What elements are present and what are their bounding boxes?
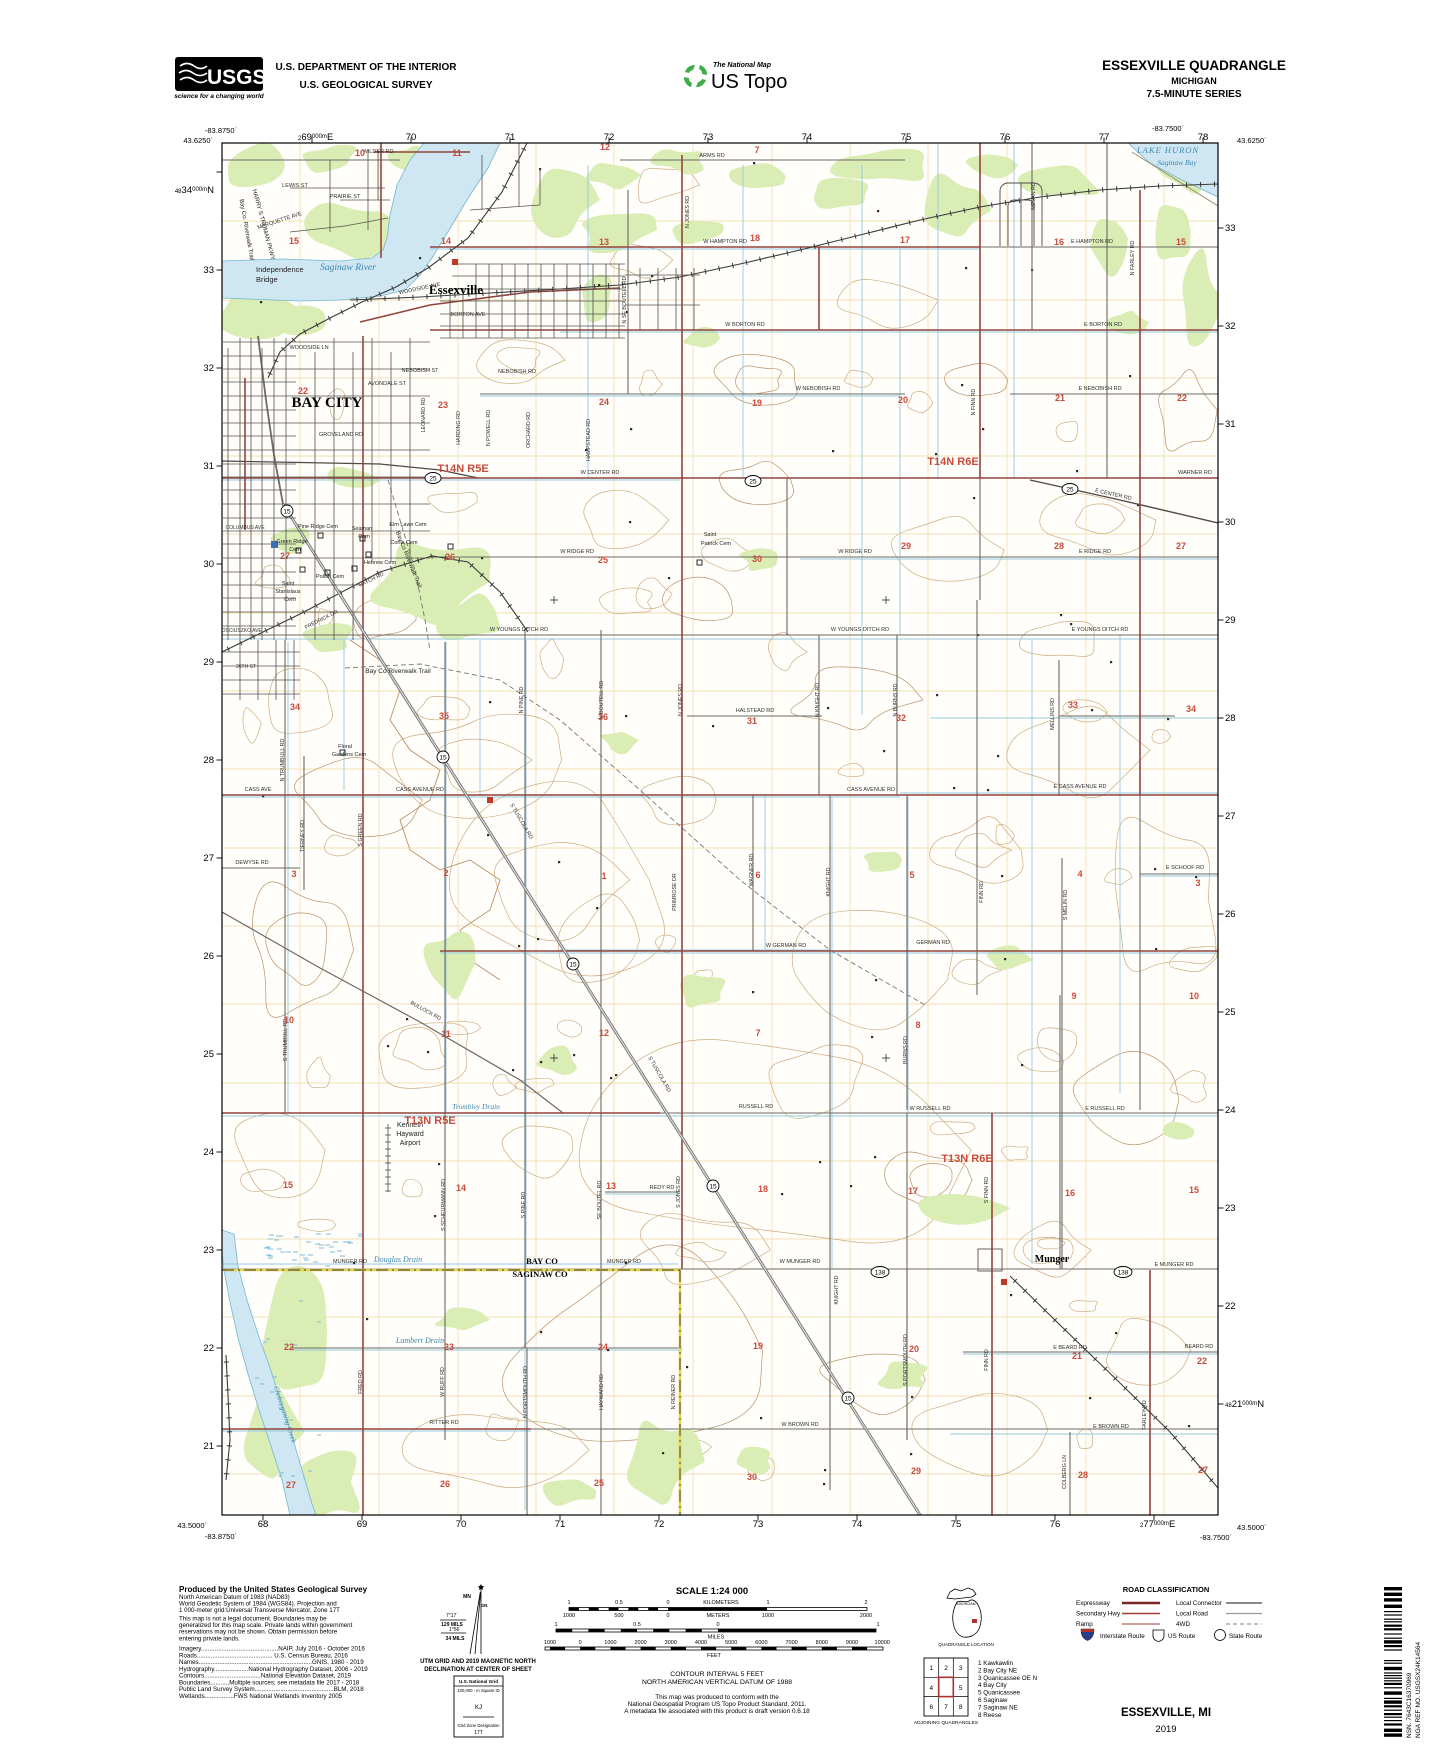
svg-text:2: 2 [944,1665,948,1672]
svg-text:7: 7 [754,145,759,155]
svg-text:Produced by the United States: Produced by the United States Geological… [179,1585,368,1594]
svg-text:N JONES RD: N JONES RD [678,684,684,716]
svg-text:26: 26 [1225,909,1236,920]
svg-text:S PINE RD: S PINE RD [521,1192,527,1219]
svg-text:1000: 1000 [563,1613,575,1619]
svg-text:N KNIGHT RD: N KNIGHT RD [815,683,821,718]
svg-text:Saint: Saint [282,581,295,587]
svg-text:BAY CO: BAY CO [526,1256,558,1266]
svg-text:E HAMPTON RD: E HAMPTON RD [1071,239,1113,245]
svg-text:Ramp: Ramp [1076,1621,1093,1628]
svg-text:Hebrew Cem: Hebrew Cem [364,560,397,566]
svg-text:USGS: USGS [207,66,267,89]
svg-text:REDY RD: REDY RD [650,1185,675,1191]
svg-text:GERMAN RD: GERMAN RD [916,940,950,946]
svg-text:WILDER RD: WILDER RD [363,149,394,155]
svg-text:W CENTER RD: W CENTER RD [581,470,620,476]
svg-text:0.5: 0.5 [633,1622,641,1628]
svg-text:70: 70 [456,1519,467,1530]
svg-text:National Geospatial Program US: National Geospatial Program US Topo Prod… [628,1701,807,1708]
svg-text:27: 27 [1198,1465,1208,1475]
svg-text:500: 500 [614,1613,623,1619]
svg-text:6: 6 [929,1704,933,1711]
svg-text:Saint: Saint [704,532,717,538]
svg-text:71: 71 [555,1519,566,1530]
svg-text:METERS: METERS [707,1613,730,1619]
svg-text:CASS AVE: CASS AVE [245,787,272,793]
svg-text:28: 28 [1054,541,1064,551]
svg-text:4000: 4000 [695,1640,707,1646]
svg-text:4WD: 4WD [1176,1621,1190,1628]
svg-text:43.6250´: 43.6250´ [1237,136,1267,145]
svg-text:COLBERG LN: COLBERG LN [1062,1455,1068,1489]
svg-text:1000: 1000 [544,1640,556,1646]
svg-text:72: 72 [654,1519,665,1530]
svg-text:18: 18 [750,233,760,243]
svg-text:MICHIGAN: MICHIGAN [1171,76,1217,86]
svg-text:0: 0 [666,1613,669,1619]
svg-text:0: 0 [716,1622,719,1628]
svg-text:100,000 - m Square ID: 100,000 - m Square ID [457,1688,499,1693]
svg-text:12: 12 [599,1028,609,1038]
svg-text:24: 24 [1225,1105,1236,1116]
svg-text:W RUSSELL RD: W RUSSELL RD [909,1106,950,1112]
svg-text:21: 21 [203,1441,214,1452]
svg-text:Floral: Floral [338,744,352,750]
svg-text:NEBOBISH RD: NEBOBISH RD [498,369,536,375]
svg-text:ORCHARD RD: ORCHARD RD [526,412,532,448]
svg-text:ADJOINING QUADRANGLES: ADJOINING QUADRANGLES [914,1720,978,1726]
svg-text:W RUFF RD: W RUFF RD [440,1367,446,1397]
svg-text:4: 4 [1077,869,1082,879]
svg-text:KNIGHT RD: KNIGHT RD [826,867,832,896]
svg-text:8 Reese: 8 Reese [978,1712,1002,1719]
svg-text:Local Connector: Local Connector [1176,1600,1222,1607]
svg-text:NEBOBISH ST: NEBOBISH ST [402,368,440,374]
svg-text:N PORTSMOUTH RD: N PORTSMOUTH RD [523,1366,529,1418]
svg-text:U.S. DEPARTMENT OF THE INTERIO: U.S. DEPARTMENT OF THE INTERIOR [276,62,458,73]
svg-text:FEET: FEET [707,1653,722,1659]
svg-text:27: 27 [1176,541,1186,551]
svg-text:20: 20 [898,395,908,405]
svg-text:HARDING RD: HARDING RD [456,411,462,445]
svg-text:15: 15 [283,1180,293,1190]
svg-text:S GREEN RD: S GREEN RD [358,813,364,846]
svg-text:This map was produced to confo: This map was produced to conform with th… [655,1694,779,1701]
svg-text:29: 29 [901,541,911,551]
svg-text:15: 15 [289,236,299,246]
svg-text:LEONARD RD: LEONARD RD [421,397,427,432]
svg-text:24: 24 [203,1147,214,1158]
svg-text:15: 15 [709,1184,717,1191]
svg-text:T13N R6E: T13N R6E [941,1153,992,1165]
svg-text:1: 1 [567,1600,570,1606]
svg-text:Munger: Munger [1035,1254,1070,1265]
svg-text:W GERMAN RD: W GERMAN RD [766,943,806,949]
svg-text:68: 68 [258,1519,269,1530]
svg-text:4 Bay City: 4 Bay City [978,1682,1008,1689]
svg-text:Saginaw Bay: Saginaw Bay [1157,158,1197,167]
svg-text:23: 23 [444,1342,454,1352]
svg-text:33: 33 [1068,700,1078,710]
svg-text:43.5000´: 43.5000´ [177,1521,207,1530]
svg-text:0.5: 0.5 [615,1600,623,1606]
svg-text:1 Kawkawlin: 1 Kawkawlin [978,1660,1013,1667]
svg-text:7: 7 [944,1704,948,1711]
svg-text:Grid Zone Designation: Grid Zone Designation [458,1723,501,1728]
svg-text:23: 23 [438,400,448,410]
svg-text:PRIMROSE DR: PRIMROSE DR [672,873,678,911]
svg-text:ARMS RD: ARMS RD [699,153,724,159]
svg-text:30: 30 [747,1472,757,1482]
svg-text:75: 75 [951,1519,962,1530]
svg-text:Wetlands.................FWS: Wetlands.................FWS National We… [179,1693,343,1700]
svg-text:15: 15 [283,509,291,516]
svg-text:74: 74 [852,1519,863,1530]
svg-text:15: 15 [569,962,577,969]
svg-text:27: 27 [286,1480,296,1490]
svg-text:U.S. National Grid: U.S. National Grid [459,1679,498,1684]
svg-text:1: 1 [929,1665,933,1672]
svg-text:9000: 9000 [846,1640,858,1646]
svg-text:17: 17 [900,235,910,245]
svg-text:E BORTON RD: E BORTON RD [1084,322,1122,328]
svg-text:MN: MN [463,1594,471,1600]
svg-text:Stanislaus: Stanislaus [275,589,301,595]
svg-text:3: 3 [959,1665,963,1672]
svg-text:27: 27 [1225,811,1236,822]
svg-text:T13N R5E: T13N R5E [404,1115,455,1127]
svg-text:CASS AVENUE RD: CASS AVENUE RD [847,787,895,793]
svg-text:US Topo: US Topo [711,71,787,93]
svg-text:34: 34 [290,702,300,712]
svg-text:28: 28 [1225,713,1236,724]
svg-text:15: 15 [439,755,447,762]
svg-text:Lambert Drain: Lambert Drain [395,1336,444,1345]
svg-text:Independence: Independence [256,265,304,274]
svg-text:14: 14 [441,236,451,246]
svg-text:CONTOUR INTERVAL 5 FEET: CONTOUR INTERVAL 5 FEET [670,1671,763,1678]
svg-text:26: 26 [440,1479,450,1489]
svg-text:Local Road: Local Road [1176,1611,1208,1618]
svg-text:30: 30 [203,559,214,570]
svg-text:MICHIGAN: MICHIGAN [957,1602,976,1606]
svg-text:State Route: State Route [1229,1633,1263,1640]
svg-text:Airport: Airport [400,1140,421,1147]
svg-text:-83.8750´: -83.8750´ [205,1532,237,1541]
svg-text:21: 21 [1055,393,1065,403]
svg-text:W MUNGER RD: W MUNGER RD [780,1259,821,1265]
svg-text:1: 1 [876,1622,879,1628]
svg-text:29: 29 [203,657,214,668]
svg-text:5: 5 [959,1685,963,1692]
svg-text:NSN. 7643C16370969: NSN. 7643C16370969 [1406,1672,1413,1738]
svg-text:15: 15 [844,1396,852,1403]
svg-text:26: 26 [445,552,455,562]
svg-text:LEWIS ST: LEWIS ST [282,183,308,189]
svg-text:W RIDGE RD: W RIDGE RD [838,549,872,555]
svg-text:Cem: Cem [284,597,296,603]
svg-text:FINN RD: FINN RD [984,1349,990,1371]
svg-text:31: 31 [1225,419,1236,430]
svg-text:SE BOUTEL RD: SE BOUTEL RD [597,1180,603,1219]
svg-text:11: 11 [441,1029,451,1039]
svg-text:WAGNER RD: WAGNER RD [749,853,755,886]
svg-text:E MUNGER RD: E MUNGER RD [1154,1262,1193,1268]
svg-text:N REINER RD: N REINER RD [671,1375,677,1410]
svg-text:4: 4 [929,1685,933,1692]
svg-text:W HAMPTON RD: W HAMPTON RD [703,239,747,245]
svg-text:7 Saginaw NE: 7 Saginaw NE [978,1704,1018,1711]
svg-text:7000: 7000 [785,1640,797,1646]
svg-text:22: 22 [1177,393,1187,403]
svg-text:US Route: US Route [1168,1633,1196,1640]
svg-text:N BURNS RD: N BURNS RD [893,683,899,716]
svg-text:W YOUNGS DITCH RD: W YOUNGS DITCH RD [831,627,889,633]
svg-text:73: 73 [753,1519,764,1530]
svg-text:MILES: MILES [708,1635,725,1641]
svg-text:32: 32 [1225,321,1236,332]
svg-text:Patrick Cem: Patrick Cem [701,541,731,547]
svg-text:22: 22 [1197,1356,1207,1366]
svg-text:U.S. GEOLOGICAL SURVEY: U.S. GEOLOGICAL SURVEY [300,80,433,91]
svg-text:Bridge: Bridge [256,275,278,284]
svg-text:TIERNEY RD: TIERNEY RD [300,820,306,852]
svg-text:PRAIRIE ST: PRAIRIE ST [330,194,361,200]
svg-text:Bay Co Riverwalk Trail: Bay Co Riverwalk Trail [365,668,431,675]
svg-text:Pine Ridge Cem: Pine Ridge Cem [298,524,338,530]
svg-text:16: 16 [1065,1188,1075,1198]
svg-text:W NEBOBISH RD: W NEBOBISH RD [796,386,841,392]
svg-text:GROVELAND RD: GROVELAND RD [319,432,363,438]
svg-text:18: 18 [758,1184,768,1194]
svg-text:22: 22 [298,386,308,396]
svg-text:7°17´: 7°17´ [446,1613,458,1619]
svg-text:RUSSELL RD: RUSSELL RD [739,1104,773,1110]
svg-text:7.5-MINUTE SERIES: 7.5-MINUTE SERIES [1146,89,1241,100]
svg-text:KNIGHT RD: KNIGHT RD [834,1275,840,1304]
svg-text:2019: 2019 [1155,1724,1176,1735]
svg-text:1: 1 [766,1600,769,1606]
svg-text:3: 3 [291,869,296,879]
svg-text:KJ: KJ [475,1705,482,1711]
svg-text:S TRUMBULL RD: S TRUMBULL RD [283,1019,289,1062]
svg-text:1°56´: 1°56´ [449,1627,461,1633]
svg-text:FARLEY RD: FARLEY RD [1142,1400,1148,1430]
svg-text:6000: 6000 [755,1640,767,1646]
svg-text:T14N R5E: T14N R5E [437,463,488,475]
svg-text:5000: 5000 [725,1640,737,1646]
svg-text:10000: 10000 [875,1640,890,1646]
svg-text:N FINN RD: N FINN RD [971,388,977,415]
svg-text:30: 30 [752,554,762,564]
svg-text:3: 3 [1195,878,1200,888]
svg-text:9: 9 [1071,991,1076,1001]
svg-text:DEWYSE RD: DEWYSE RD [235,860,268,866]
svg-text:32: 32 [203,363,214,374]
svg-text:BORTON AVE: BORTON AVE [450,312,485,318]
svg-text:19: 19 [753,1341,763,1351]
svg-text:14: 14 [456,1183,466,1193]
svg-text:3 Quanicassee OE N: 3 Quanicassee OE N [978,1675,1038,1682]
svg-text:S SCHEURMANN RD: S SCHEURMANN RD [441,1179,447,1231]
svg-text:S JONES RD: S JONES RD [676,1176,682,1208]
svg-text:32: 32 [896,713,906,723]
svg-text:35: 35 [439,711,449,721]
svg-text:25: 25 [203,1049,214,1060]
svg-text:Expressway: Expressway [1076,1600,1111,1607]
svg-text:MELAN RD: MELAN RD [1031,182,1037,210]
svg-text:BEARD RD: BEARD RD [1185,1344,1213,1350]
svg-text:13: 13 [599,237,609,247]
svg-text:BAY CITY: BAY CITY [292,395,363,411]
svg-text:8000: 8000 [816,1640,828,1646]
svg-text:28: 28 [203,755,214,766]
svg-text:69: 69 [357,1519,368,1530]
svg-text:31: 31 [203,461,214,472]
svg-text:6: 6 [755,870,760,880]
svg-text:CASS AVENUE RD: CASS AVENUE RD [396,787,444,793]
svg-text:KOSCIUSZKO AVE: KOSCIUSZKO AVE [218,628,262,634]
svg-text:UTM GRID AND 2019 MAGNETIC NOR: UTM GRID AND 2019 MAGNETIC NORTH [420,1659,536,1665]
svg-text:36: 36 [598,712,608,722]
svg-text:S PORTSMOUTH RD: S PORTSMOUTH RD [903,1334,909,1386]
svg-text:43.6250´: 43.6250´ [183,136,213,145]
svg-text:Douglas Drain: Douglas Drain [373,1255,422,1264]
svg-text:NORTH AMERICAN VERTICAL DATUM: NORTH AMERICAN VERTICAL DATUM OF 1988 [642,1679,792,1686]
svg-text:2 Bay City NE: 2 Bay City NE [978,1667,1017,1674]
svg-text:W RIDGE RD: W RIDGE RD [560,549,594,555]
svg-text:The National Map: The National Map [713,62,772,69]
svg-text:13: 13 [606,1181,616,1191]
svg-text:33: 33 [203,265,214,276]
svg-text:science for a changing world: science for a changing world [174,93,265,100]
svg-text:22: 22 [284,1342,294,1352]
svg-text:27: 27 [280,551,290,561]
svg-text:10: 10 [355,148,365,158]
svg-text:3000: 3000 [665,1640,677,1646]
svg-text:Corlis Cem: Corlis Cem [390,540,418,546]
svg-text:QUADRANGLE LOCATION: QUADRANGLE LOCATION [938,1642,993,1647]
svg-text:Cem: Cem [289,547,301,553]
svg-text:E CASS AVENUE RD: E CASS AVENUE RD [1053,784,1106,790]
svg-text:Essexville: Essexville [429,282,483,297]
svg-text:138: 138 [875,1270,886,1277]
svg-text:E YOUNGS DITCH RD: E YOUNGS DITCH RD [1072,627,1129,633]
svg-text:17: 17 [908,1186,918,1196]
svg-text:A metadata file associated wit: A metadata file associated with this pro… [624,1708,810,1715]
svg-text:8: 8 [915,1020,920,1030]
svg-text:25: 25 [1225,1007,1236,1018]
svg-text:25: 25 [429,476,437,483]
svg-text:LAKE HURON: LAKE HURON [1136,145,1200,155]
svg-text:E NEBOBISH RD: E NEBOBISH RD [1078,386,1121,392]
svg-text:Gardens Cem: Gardens Cem [332,752,367,758]
svg-text:30: 30 [1225,517,1236,528]
svg-text:W BROWN RD: W BROWN RD [781,1422,818,1428]
svg-text:HAYWARD RD: HAYWARD RD [599,1374,605,1410]
svg-text:1000: 1000 [762,1613,774,1619]
svg-text:-83.8750´: -83.8750´ [205,126,237,135]
svg-text:Seaman: Seaman [352,526,373,532]
svg-text:27: 27 [203,853,214,864]
svg-text:WARNER RD: WARNER RD [1178,470,1212,476]
svg-text:S MELIN RD: S MELIN RD [1063,890,1069,920]
svg-text:2000: 2000 [860,1613,872,1619]
svg-text:7: 7 [755,1028,760,1038]
svg-text:N JONES RD: N JONES RD [685,196,691,228]
svg-text:10: 10 [1189,991,1199,1001]
svg-text:Green Ridge: Green Ridge [276,539,307,545]
svg-text:Hayward: Hayward [396,1131,424,1138]
svg-text:22: 22 [203,1343,214,1354]
svg-text:19: 19 [752,398,762,408]
svg-text:Cem: Cem [358,534,370,540]
svg-text:138: 138 [1118,1270,1129,1277]
svg-text:25: 25 [594,1478,604,1488]
svg-text:N TRUMBULL RD: N TRUMBULL RD [280,738,286,781]
svg-text:GN: GN [481,1603,488,1608]
svg-text:2: 2 [443,868,448,878]
svg-text:16: 16 [1054,237,1064,247]
svg-text:26: 26 [203,951,214,962]
svg-text:22: 22 [1225,1301,1236,1312]
svg-text:20: 20 [909,1344,919,1354]
svg-text:ROAD CLASSIFICATION: ROAD CLASSIFICATION [1123,1585,1210,1594]
svg-text:23: 23 [203,1245,214,1256]
svg-text:ESSEXVILLE, MI: ESSEXVILLE, MI [1121,1707,1211,1719]
svg-text:25: 25 [749,479,757,486]
svg-text:SAGINAW CO: SAGINAW CO [512,1269,568,1279]
svg-text:0: 0 [579,1640,582,1646]
svg-text:Secondary Hwy: Secondary Hwy [1076,1611,1121,1618]
svg-text:Saginaw River: Saginaw River [320,263,376,273]
svg-text:43.5000´: 43.5000´ [1237,1523,1267,1532]
svg-text:2000: 2000 [634,1640,646,1646]
svg-text:21: 21 [1072,1351,1082,1361]
svg-text:26TH ST: 26TH ST [236,664,256,670]
svg-text:-83.7500´: -83.7500´ [1200,1533,1232,1542]
svg-text:HAMPSTEAD RD: HAMPSTEAD RD [586,419,592,461]
svg-text:33: 33 [1225,223,1236,234]
svg-text:29: 29 [911,1466,921,1476]
svg-text:76: 76 [1050,1519,1061,1530]
svg-text:2: 2 [864,1600,867,1606]
svg-text:Polish Cem: Polish Cem [316,574,345,580]
svg-text:RITTER RD: RITTER RD [429,1420,458,1426]
svg-text:COLUMBUS AVE: COLUMBUS AVE [225,525,265,531]
svg-text:HALSTEAD RD: HALSTEAD RD [736,708,775,714]
svg-text:ESSEXVILLE QUADRANGLE: ESSEXVILLE QUADRANGLE [1102,58,1286,73]
svg-text:5: 5 [909,870,914,880]
svg-text:Trombley Drain: Trombley Drain [452,1102,500,1111]
svg-text:KILOMETERS: KILOMETERS [703,1600,739,1606]
svg-text:25: 25 [598,555,608,565]
svg-text:E RUSSELL RD: E RUSSELL RD [1085,1106,1125,1112]
svg-text:E SCHOOF RD: E SCHOOF RD [1166,865,1204,871]
svg-text:17T: 17T [474,1730,483,1736]
svg-text:FINN RD: FINN RD [979,881,985,903]
svg-text:S FINN RD: S FINN RD [984,1177,990,1204]
svg-text:24: 24 [599,397,609,407]
svg-text:MELLINS RD: MELLINS RD [1050,698,1056,730]
svg-text:BURNS RD: BURNS RD [903,1036,909,1064]
svg-text:0: 0 [666,1600,669,1606]
svg-text:6 Saginaw: 6 Saginaw [978,1697,1008,1704]
svg-text:AVONDALE ST: AVONDALE ST [368,381,407,387]
svg-text:N SE BOUTELL RD: N SE BOUTELL RD [622,276,628,323]
svg-text:34 MILS: 34 MILS [446,1636,466,1642]
